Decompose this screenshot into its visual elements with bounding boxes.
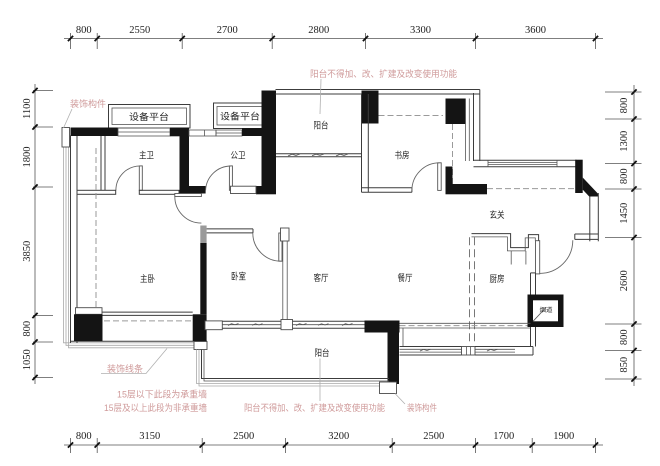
svg-text:阳台: 阳台 (315, 347, 330, 358)
svg-text:玄关: 玄关 (490, 209, 505, 220)
svg-text:800: 800 (76, 431, 92, 442)
svg-text:主卫: 主卫 (139, 150, 154, 161)
svg-text:阳台: 阳台 (314, 120, 329, 131)
svg-text:装饰构件: 装饰构件 (70, 98, 106, 109)
svg-text:卧室: 卧室 (231, 271, 246, 282)
svg-text:800: 800 (619, 168, 630, 184)
svg-text:书房: 书房 (395, 150, 410, 161)
svg-text:3300: 3300 (410, 25, 431, 36)
svg-text:800: 800 (619, 98, 630, 114)
svg-text:客厅: 客厅 (314, 272, 329, 283)
svg-text:3150: 3150 (139, 431, 160, 442)
svg-text:主卧: 主卧 (140, 273, 155, 284)
svg-text:餐厅: 餐厅 (398, 272, 413, 283)
svg-text:装饰构件: 装饰构件 (407, 402, 437, 413)
svg-text:800: 800 (76, 25, 92, 36)
svg-text:装饰线条: 装饰线条 (107, 363, 143, 374)
svg-text:公卫: 公卫 (231, 151, 246, 161)
svg-text:15层以下此段为承重墙: 15层以下此段为承重墙 (117, 389, 207, 400)
svg-text:设备平台: 设备平台 (129, 111, 169, 122)
svg-text:2800: 2800 (308, 25, 329, 36)
svg-text:800: 800 (22, 321, 33, 337)
svg-text:阳台不得加、改、扩建及改变使用功能: 阳台不得加、改、扩建及改变使用功能 (310, 68, 457, 79)
svg-text:厨房: 厨房 (490, 273, 505, 284)
svg-text:1900: 1900 (553, 431, 574, 442)
svg-text:2500: 2500 (423, 431, 444, 442)
svg-text:2500: 2500 (233, 431, 254, 442)
svg-text:2550: 2550 (129, 25, 150, 36)
svg-text:1050: 1050 (22, 349, 33, 370)
svg-text:1800: 1800 (22, 147, 33, 168)
svg-text:1100: 1100 (22, 98, 33, 119)
svg-text:3600: 3600 (525, 25, 546, 36)
svg-text:1700: 1700 (493, 431, 514, 442)
svg-text:3200: 3200 (328, 431, 349, 442)
svg-text:烟道: 烟道 (540, 306, 553, 314)
svg-text:15层及以上此段为非承重墙: 15层及以上此段为非承重墙 (104, 402, 207, 413)
svg-text:设备平台: 设备平台 (220, 111, 260, 122)
svg-text:阳台不得加、改、扩建及改变使用功能: 阳台不得加、改、扩建及改变使用功能 (244, 402, 385, 413)
svg-text:1300: 1300 (619, 131, 630, 152)
svg-text:850: 850 (619, 357, 630, 373)
svg-text:3850: 3850 (22, 241, 33, 262)
svg-text:1450: 1450 (619, 203, 630, 224)
svg-text:2700: 2700 (217, 25, 238, 36)
svg-text:2600: 2600 (619, 270, 630, 291)
svg-text:800: 800 (619, 329, 630, 345)
